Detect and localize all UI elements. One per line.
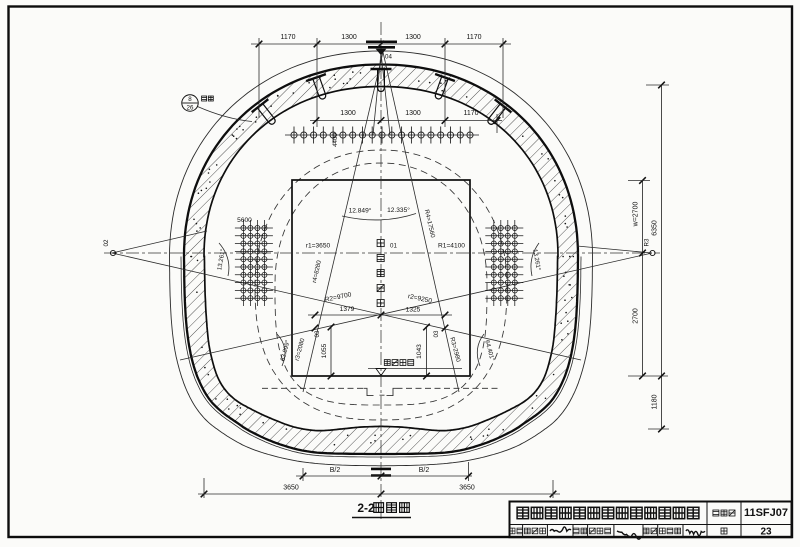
svg-text:1170: 1170 [280, 34, 295, 41]
svg-text:R1=4100: R1=4100 [438, 243, 465, 250]
svg-text:1325: 1325 [406, 307, 421, 314]
svg-text:04: 04 [385, 54, 392, 61]
svg-text:1043: 1043 [416, 344, 423, 359]
svg-text:1379: 1379 [340, 306, 355, 313]
svg-text:1300: 1300 [340, 110, 356, 117]
svg-text:11SFJ07: 11SFJ07 [744, 507, 788, 519]
svg-text:2700: 2700 [633, 308, 640, 324]
svg-text:1170: 1170 [463, 110, 478, 117]
svg-text:5600: 5600 [237, 217, 252, 224]
svg-text:23: 23 [760, 527, 772, 538]
svg-text:w=2700: w=2700 [633, 202, 640, 228]
svg-text:6350: 6350 [652, 220, 659, 236]
svg-text:1170: 1170 [466, 34, 481, 41]
svg-text:12.335°: 12.335° [387, 206, 410, 214]
svg-text:1180: 1180 [652, 394, 659, 409]
svg-text:1300: 1300 [405, 34, 421, 41]
svg-text:B/2: B/2 [330, 467, 341, 474]
svg-text:1300: 1300 [341, 34, 357, 41]
svg-text:8: 8 [188, 96, 192, 103]
svg-text:02: 02 [103, 239, 110, 246]
svg-text:03: 03 [314, 330, 321, 337]
svg-text:01: 01 [390, 243, 397, 250]
svg-text:2-2: 2-2 [357, 501, 375, 515]
svg-text:B/2: B/2 [419, 467, 430, 474]
svg-text:03: 03 [433, 330, 440, 337]
svg-text:3650: 3650 [459, 485, 475, 492]
svg-text:12.849°: 12.849° [349, 207, 372, 215]
svg-text:3650: 3650 [283, 485, 299, 492]
svg-text:r1=3650: r1=3650 [306, 243, 331, 250]
svg-text:26: 26 [187, 105, 194, 112]
svg-text:4400: 4400 [332, 133, 339, 147]
svg-text:1055: 1055 [321, 343, 328, 358]
svg-text:1300: 1300 [405, 110, 421, 117]
svg-text:R3: R3 [644, 238, 651, 246]
